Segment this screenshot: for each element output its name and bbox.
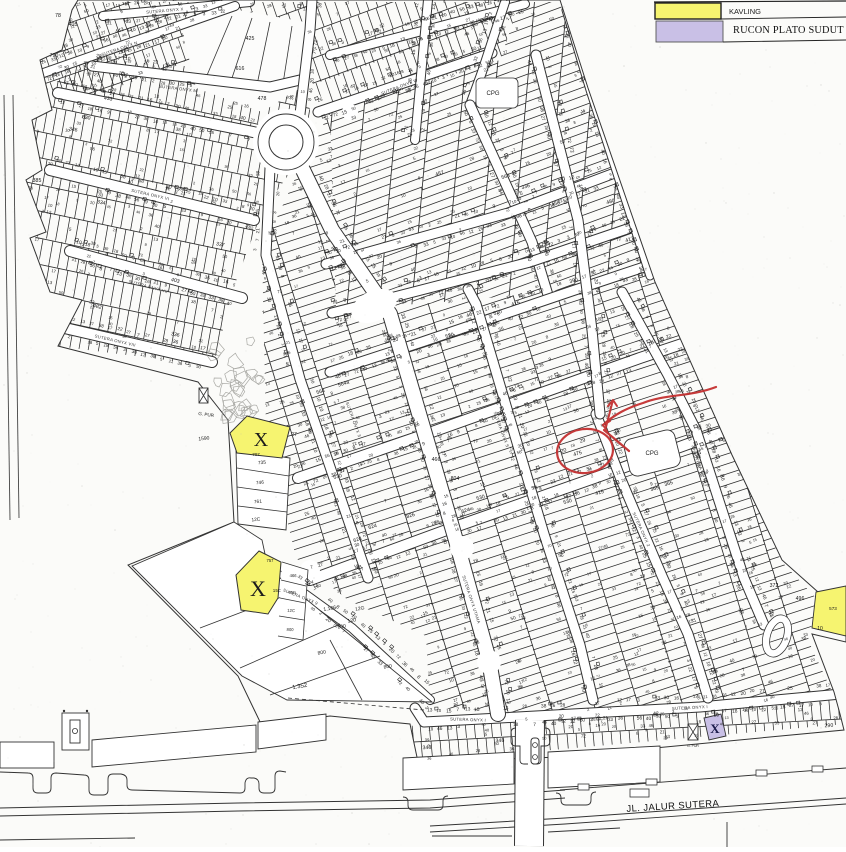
svg-text:16: 16 [550, 703, 556, 708]
svg-text:18: 18 [255, 171, 260, 177]
svg-text:21: 21 [603, 715, 609, 720]
svg-text:25: 25 [168, 64, 173, 69]
svg-text:78: 78 [55, 13, 61, 19]
svg-text:38: 38 [317, 2, 322, 8]
svg-text:15: 15 [599, 332, 605, 338]
svg-text:735: 735 [258, 460, 267, 467]
svg-text:466: 466 [432, 457, 441, 463]
svg-text:10: 10 [300, 90, 305, 95]
svg-text:757: 757 [267, 558, 275, 563]
svg-text:5: 5 [425, 81, 430, 84]
svg-text:46: 46 [542, 719, 548, 724]
svg-text:25: 25 [233, 100, 238, 106]
svg-text:385: 385 [33, 178, 42, 184]
svg-text:20: 20 [83, 60, 88, 65]
svg-text:50: 50 [665, 714, 671, 719]
svg-text:18: 18 [712, 693, 717, 698]
svg-text:27: 27 [112, 228, 117, 233]
svg-text:12C: 12C [287, 608, 295, 613]
svg-text:790: 790 [50, 53, 59, 59]
svg-text:17: 17 [428, 32, 433, 37]
svg-text:X: X [254, 429, 269, 451]
svg-text:12: 12 [693, 693, 699, 698]
svg-text:804: 804 [451, 476, 460, 482]
svg-text:28: 28 [146, 311, 151, 316]
svg-text:20: 20 [559, 713, 565, 718]
svg-text:13: 13 [724, 716, 728, 720]
svg-text:30: 30 [684, 707, 688, 711]
svg-text:13: 13 [431, 4, 437, 10]
svg-text:15: 15 [108, 316, 113, 321]
svg-text:27: 27 [291, 432, 297, 438]
svg-text:13: 13 [272, 229, 278, 235]
svg-text:15: 15 [774, 705, 779, 710]
svg-text:20: 20 [79, 269, 84, 274]
svg-text:433: 433 [103, 95, 113, 102]
svg-text:72: 72 [79, 242, 84, 248]
svg-text:761: 761 [254, 499, 263, 506]
svg-text:KAVLING: KAVLING [729, 7, 761, 16]
svg-text:25: 25 [660, 711, 665, 716]
svg-text:5: 5 [578, 728, 580, 732]
svg-text:372: 372 [770, 583, 779, 589]
svg-text:18: 18 [428, 726, 434, 731]
svg-text:50: 50 [542, 736, 546, 740]
svg-text:36: 36 [427, 756, 431, 760]
svg-text:348: 348 [495, 738, 504, 744]
svg-text:17: 17 [721, 708, 727, 713]
svg-text:27: 27 [759, 688, 765, 693]
svg-text:56: 56 [637, 715, 643, 721]
svg-text:12: 12 [654, 710, 660, 715]
svg-text:8: 8 [589, 722, 591, 726]
svg-text:10: 10 [131, 75, 137, 82]
svg-text:33: 33 [211, 10, 217, 15]
svg-text:33: 33 [76, 120, 81, 126]
svg-text:40: 40 [551, 721, 557, 726]
svg-text:18: 18 [780, 704, 786, 710]
svg-text:38: 38 [541, 703, 547, 709]
svg-text:13: 13 [465, 706, 471, 711]
svg-text:15: 15 [127, 59, 132, 64]
svg-text:36: 36 [618, 715, 624, 721]
svg-text:28: 28 [134, 0, 140, 6]
svg-text:20: 20 [309, 77, 315, 83]
svg-text:5: 5 [525, 716, 527, 721]
svg-text:46: 46 [106, 205, 111, 210]
svg-text:17: 17 [626, 697, 632, 702]
svg-text:33: 33 [774, 720, 780, 725]
svg-text:72: 72 [108, 139, 113, 144]
svg-text:40: 40 [221, 269, 226, 274]
svg-text:27: 27 [789, 702, 795, 708]
svg-text:573: 573 [829, 606, 837, 611]
svg-text:20: 20 [585, 371, 591, 377]
svg-text:X: X [250, 576, 266, 601]
svg-text:405: 405 [69, 22, 78, 28]
svg-text:15: 15 [411, 49, 417, 55]
svg-text:17: 17 [603, 370, 609, 376]
svg-text:12: 12 [730, 691, 736, 696]
svg-text:56: 56 [247, 192, 252, 197]
svg-text:18: 18 [513, 722, 519, 727]
svg-text:38: 38 [816, 683, 822, 688]
svg-text:800: 800 [286, 627, 294, 632]
svg-text:CPG: CPG [645, 451, 658, 457]
svg-text:9: 9 [645, 728, 647, 732]
svg-text:56: 56 [579, 318, 586, 324]
svg-text:707: 707 [252, 452, 260, 457]
svg-text:15: 15 [446, 708, 452, 714]
svg-text:12: 12 [798, 707, 804, 712]
svg-text:16: 16 [696, 719, 702, 724]
svg-text:10: 10 [817, 626, 823, 632]
svg-text:46: 46 [584, 362, 589, 368]
svg-text:28: 28 [560, 702, 566, 707]
svg-text:27: 27 [162, 0, 167, 4]
svg-text:46: 46 [196, 94, 201, 99]
svg-text:27: 27 [812, 720, 818, 725]
svg-text:22: 22 [249, 226, 254, 231]
svg-text:RUCON PLATO SUDUT: RUCON PLATO SUDUT [733, 25, 844, 36]
svg-text:33: 33 [608, 717, 614, 722]
svg-text:27: 27 [751, 719, 757, 724]
svg-text:72: 72 [595, 287, 602, 293]
svg-text:12C: 12C [251, 517, 261, 524]
svg-text:72: 72 [138, 253, 143, 258]
svg-text:13: 13 [503, 705, 509, 711]
svg-text:36: 36 [56, 188, 61, 193]
svg-text:21: 21 [255, 228, 260, 234]
svg-text:12: 12 [561, 718, 567, 723]
svg-text:616: 616 [236, 66, 245, 72]
svg-text:20: 20 [612, 725, 616, 729]
svg-text:15: 15 [474, 707, 480, 713]
svg-text:16: 16 [674, 695, 680, 700]
svg-text:46: 46 [136, 210, 141, 215]
svg-text:12: 12 [586, 231, 593, 237]
svg-text:46: 46 [437, 726, 443, 732]
svg-text:33: 33 [655, 695, 661, 701]
svg-text:13: 13 [427, 707, 433, 713]
svg-text:13: 13 [447, 725, 453, 731]
svg-text:25: 25 [591, 718, 595, 722]
svg-text:15: 15 [255, 209, 261, 215]
svg-text:13: 13 [665, 734, 671, 739]
svg-text:16: 16 [179, 148, 184, 153]
svg-text:466: 466 [289, 573, 297, 578]
svg-text:22: 22 [139, 168, 144, 173]
svg-text:30: 30 [122, 334, 127, 339]
svg-text:50: 50 [580, 717, 586, 722]
svg-text:36: 36 [509, 746, 515, 751]
svg-text:30: 30 [108, 322, 113, 327]
svg-text:13: 13 [216, 222, 221, 227]
svg-text:72: 72 [581, 733, 587, 738]
svg-text:46: 46 [449, 751, 454, 756]
svg-text:425: 425 [246, 36, 255, 42]
svg-text:28: 28 [407, 78, 413, 84]
svg-text:18: 18 [732, 708, 738, 714]
svg-text:16: 16 [694, 733, 698, 737]
svg-text:46: 46 [426, 69, 431, 75]
svg-text:13: 13 [162, 66, 167, 72]
svg-text:1590: 1590 [198, 436, 210, 443]
svg-text:30: 30 [211, 271, 216, 276]
svg-text:746: 746 [256, 480, 265, 487]
svg-text:40: 40 [720, 722, 724, 726]
svg-text:20: 20 [714, 712, 720, 717]
svg-text:72: 72 [595, 713, 601, 718]
svg-text:56: 56 [425, 738, 429, 742]
svg-text:38: 38 [587, 400, 593, 406]
svg-text:18: 18 [55, 202, 60, 207]
svg-text:25: 25 [787, 686, 793, 692]
svg-text:21: 21 [165, 186, 170, 192]
svg-text:27: 27 [571, 716, 577, 721]
svg-text:18: 18 [127, 109, 132, 115]
svg-text:40: 40 [646, 716, 652, 722]
svg-text:3: 3 [457, 724, 460, 730]
svg-text:343: 343 [422, 745, 431, 751]
svg-text:G. PUR: G. PUR [687, 744, 699, 748]
svg-text:CPG: CPG [486, 91, 499, 97]
svg-text:36: 36 [224, 165, 229, 170]
svg-text:72: 72 [313, 40, 320, 46]
svg-text:22: 22 [86, 254, 91, 259]
svg-text:40: 40 [481, 723, 485, 727]
svg-text:17: 17 [154, 130, 159, 135]
svg-text:496: 496 [796, 596, 805, 602]
svg-text:28: 28 [96, 53, 102, 60]
svg-text:478: 478 [258, 96, 267, 102]
svg-text:33: 33 [125, 19, 131, 25]
svg-text:290: 290 [824, 723, 833, 729]
svg-text:20: 20 [740, 691, 746, 697]
svg-text:30: 30 [286, 95, 291, 100]
svg-text:20: 20 [253, 182, 258, 187]
